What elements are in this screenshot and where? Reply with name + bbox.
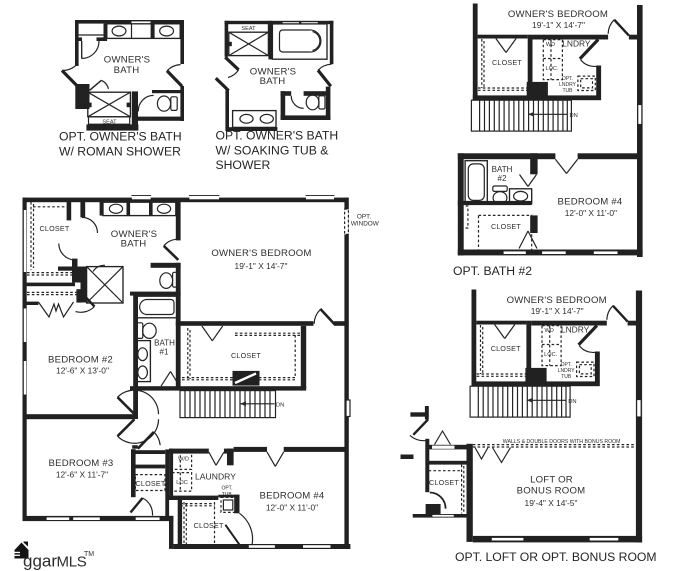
svg-text:DN: DN — [568, 399, 576, 405]
svg-text:19'-4" X 14'-5": 19'-4" X 14'-5" — [525, 498, 578, 508]
svg-text:LOFT OR: LOFT OR — [530, 474, 573, 485]
svg-text:W/D: W/D — [178, 456, 189, 462]
svg-text:CLOSET: CLOSET — [429, 478, 459, 487]
svg-text:12'-0" X 11'-0": 12'-0" X 11'-0" — [266, 503, 318, 513]
svg-text:DN: DN — [276, 403, 284, 409]
svg-text:OWNER'S: OWNER'S — [104, 55, 150, 66]
svg-text:CLOSET: CLOSET — [194, 521, 224, 530]
svg-text:OPT. OWNER'S BATH: OPT. OWNER'S BATH — [216, 129, 339, 143]
svg-text:WD: WD — [545, 328, 554, 334]
svg-text:#2: #2 — [498, 174, 507, 183]
svg-text:LOC.: LOC. — [544, 352, 558, 358]
svg-text:OWNER'S BEDROOM: OWNER'S BEDROOM — [508, 9, 608, 20]
svg-text:WINDOW: WINDOW — [351, 220, 380, 227]
svg-text:DN: DN — [570, 113, 578, 119]
svg-text:CLOSET: CLOSET — [231, 351, 261, 360]
svg-text:BONUS ROOM: BONUS ROOM — [517, 486, 586, 497]
svg-text:#1: #1 — [160, 348, 169, 357]
svg-text:CLOSET: CLOSET — [491, 222, 521, 231]
svg-text:ggar: ggar — [23, 552, 57, 571]
svg-text:OWNER'S BEDROOM: OWNER'S BEDROOM — [211, 248, 311, 259]
svg-text:TM: TM — [84, 551, 94, 558]
svg-text:TUB: TUB — [563, 88, 574, 94]
svg-text:BEDROOM #4: BEDROOM #4 — [260, 490, 325, 501]
svg-text:CLOSET: CLOSET — [492, 58, 522, 67]
svg-text:BEDROOM #3: BEDROOM #3 — [49, 458, 114, 469]
svg-text:CLOSET: CLOSET — [136, 479, 166, 488]
svg-text:SHOWER: SHOWER — [216, 158, 271, 172]
svg-text:W/ SOAKING TUB &: W/ SOAKING TUB & — [216, 144, 329, 158]
svg-text:OPT. OWNER'S BATH: OPT. OWNER'S BATH — [59, 130, 182, 144]
svg-text:BEDROOM #2: BEDROOM #2 — [48, 354, 113, 365]
svg-text:BATH: BATH — [121, 238, 147, 249]
svg-text:BEDROOM #4: BEDROOM #4 — [558, 197, 623, 208]
svg-text:12'-6" X 13'-0": 12'-6" X 13'-0" — [56, 365, 109, 375]
svg-text:CLOSET: CLOSET — [40, 224, 70, 233]
svg-text:TUB: TUB — [561, 374, 572, 380]
svg-text:W/ ROMAN SHOWER: W/ ROMAN SHOWER — [59, 145, 181, 159]
svg-text:MLS: MLS — [57, 554, 87, 571]
svg-text:LNDRY.: LNDRY. — [562, 38, 591, 48]
svg-text:LAUNDRY: LAUNDRY — [195, 471, 236, 481]
svg-text:19'-1" X 14'-7": 19'-1" X 14'-7" — [531, 306, 584, 316]
svg-text:BATH: BATH — [492, 165, 513, 174]
svg-text:OPT. BATH #2: OPT. BATH #2 — [453, 264, 532, 278]
svg-text:19'-1" X 14'-7": 19'-1" X 14'-7" — [235, 261, 288, 271]
svg-text:SEAT: SEAT — [241, 26, 256, 32]
svg-text:12'-6" X 11'-7": 12'-6" X 11'-7" — [56, 470, 108, 480]
svg-text:BATH: BATH — [114, 65, 140, 76]
svg-text:OWNER'S BEDROOM: OWNER'S BEDROOM — [507, 295, 607, 306]
svg-text:OPT. LOFT OR OPT. BONUS ROOM: OPT. LOFT OR OPT. BONUS ROOM — [455, 550, 657, 564]
svg-text:LNDRY.: LNDRY. — [561, 324, 590, 334]
svg-text:12'-0" X 11'-0": 12'-0" X 11'-0" — [565, 208, 617, 218]
svg-text:19'-1" X 14'-7": 19'-1" X 14'-7" — [532, 20, 585, 30]
svg-text:LOC: LOC — [176, 480, 188, 486]
svg-text:BATH: BATH — [154, 339, 175, 348]
svg-text:BATH: BATH — [260, 76, 286, 87]
svg-text:WD: WD — [546, 42, 555, 48]
svg-text:OPT.: OPT. — [221, 486, 232, 492]
svg-text:LOC.: LOC. — [545, 66, 559, 72]
svg-text:CLOSET: CLOSET — [491, 344, 521, 353]
